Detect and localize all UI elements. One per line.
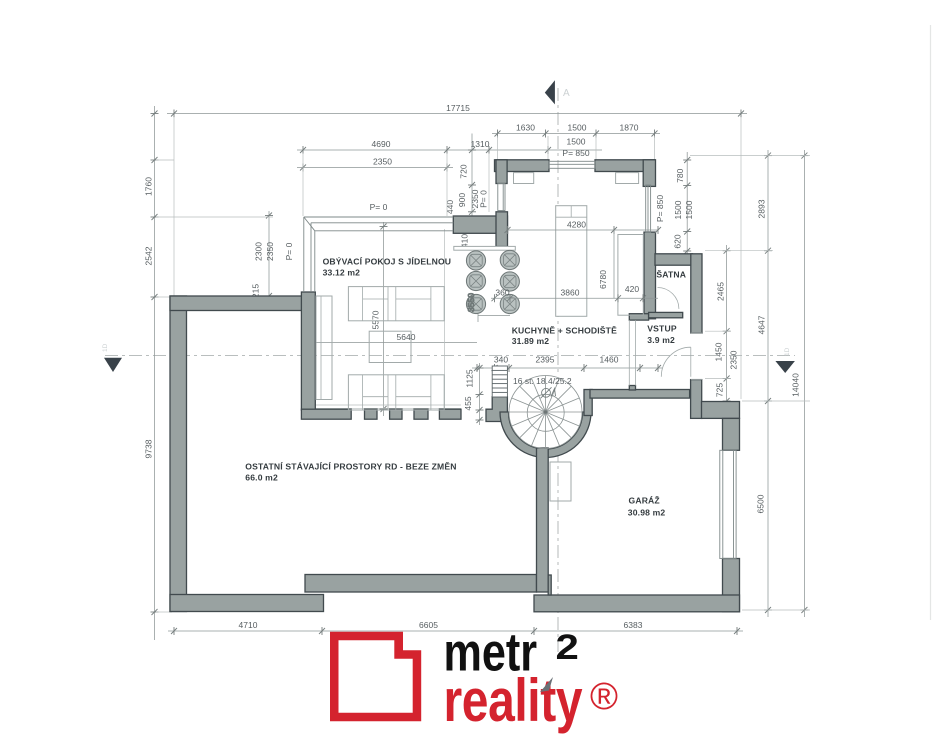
svg-text:P= 0: P= 0 xyxy=(479,190,489,208)
svg-text:16 st. 18.4/25.2: 16 st. 18.4/25.2 xyxy=(513,376,572,386)
svg-text:®: ® xyxy=(590,676,618,718)
svg-text:1450: 1450 xyxy=(714,342,724,361)
svg-text:1500: 1500 xyxy=(568,123,587,133)
svg-text:P= 0: P= 0 xyxy=(370,202,388,212)
svg-text:9738: 9738 xyxy=(144,439,154,458)
svg-text:A: A xyxy=(563,88,570,99)
svg-text:1630: 1630 xyxy=(516,123,535,133)
svg-text:1870: 1870 xyxy=(620,123,639,133)
svg-text:455: 455 xyxy=(463,396,473,410)
svg-text:780: 780 xyxy=(675,168,685,182)
svg-text:1310: 1310 xyxy=(471,139,490,149)
svg-text:2300: 2300 xyxy=(254,242,264,261)
svg-text:1760: 1760 xyxy=(144,177,154,196)
svg-text:3.9 m2: 3.9 m2 xyxy=(647,335,675,345)
svg-text:P= 0: P= 0 xyxy=(284,242,294,260)
svg-text:1125: 1125 xyxy=(465,369,475,388)
svg-text:2350: 2350 xyxy=(729,350,739,369)
svg-text:720: 720 xyxy=(459,164,469,178)
svg-text:3860: 3860 xyxy=(561,288,580,298)
svg-text:900: 900 xyxy=(457,193,467,207)
svg-text:4647: 4647 xyxy=(757,315,767,334)
svg-text:1500: 1500 xyxy=(567,137,586,147)
svg-text:6500: 6500 xyxy=(756,494,766,513)
svg-text:5570: 5570 xyxy=(371,310,381,329)
svg-text:reality: reality xyxy=(444,667,583,734)
svg-text:2: 2 xyxy=(556,628,579,667)
svg-text:2893: 2893 xyxy=(757,199,767,218)
svg-text:725: 725 xyxy=(715,383,725,397)
svg-text:1460: 1460 xyxy=(600,355,619,365)
svg-text:4710: 4710 xyxy=(239,620,258,630)
svg-text:340: 340 xyxy=(494,355,508,365)
svg-text:420: 420 xyxy=(625,284,639,294)
svg-text:1500: 1500 xyxy=(684,200,694,219)
svg-text:1D: 1D xyxy=(784,347,791,356)
svg-text:33.12 m2: 33.12 m2 xyxy=(323,267,361,277)
svg-text:P= 850: P= 850 xyxy=(562,148,589,158)
svg-text:VSTUP: VSTUP xyxy=(647,324,677,334)
svg-text:2350: 2350 xyxy=(265,242,275,261)
svg-text:ŠATNA: ŠATNA xyxy=(656,269,686,280)
svg-text:14040: 14040 xyxy=(791,373,801,397)
svg-text:KUCHYNĚ + SCHODIŠTĚ: KUCHYNĚ + SCHODIŠTĚ xyxy=(512,325,617,336)
svg-text:3550: 3550 xyxy=(466,293,476,312)
svg-text:OSTATNÍ STÁVAJÍCÍ PROSTORY RD: OSTATNÍ STÁVAJÍCÍ PROSTORY RD - BEZE ZMĚ… xyxy=(245,461,456,472)
svg-text:P= 850: P= 850 xyxy=(655,195,665,222)
svg-text:2350: 2350 xyxy=(373,157,392,167)
svg-text:440: 440 xyxy=(445,200,455,214)
svg-text:620: 620 xyxy=(673,234,683,248)
svg-text:2465: 2465 xyxy=(716,282,726,301)
svg-text:GARÁŽ: GARÁŽ xyxy=(629,495,660,506)
svg-text:17715: 17715 xyxy=(446,103,470,113)
svg-text:5640: 5640 xyxy=(397,332,416,342)
svg-text:66.0 m2: 66.0 m2 xyxy=(245,472,278,482)
svg-text:31.89 m2: 31.89 m2 xyxy=(512,336,550,346)
svg-text:2395: 2395 xyxy=(536,355,555,365)
svg-text:30.98 m2: 30.98 m2 xyxy=(628,508,666,518)
svg-text:360: 360 xyxy=(495,288,509,298)
svg-text:6383: 6383 xyxy=(624,620,643,630)
svg-text:1D: 1D xyxy=(102,343,109,352)
svg-text:1500: 1500 xyxy=(673,200,683,219)
svg-text:4280: 4280 xyxy=(567,220,586,230)
svg-text:OBÝVACÍ POKOJ S JÍDELNOU: OBÝVACÍ POKOJ S JÍDELNOU xyxy=(323,256,452,267)
svg-text:4690: 4690 xyxy=(372,139,391,149)
svg-text:6605: 6605 xyxy=(419,620,438,630)
svg-text:6780: 6780 xyxy=(598,270,608,289)
svg-text:2542: 2542 xyxy=(144,246,154,265)
